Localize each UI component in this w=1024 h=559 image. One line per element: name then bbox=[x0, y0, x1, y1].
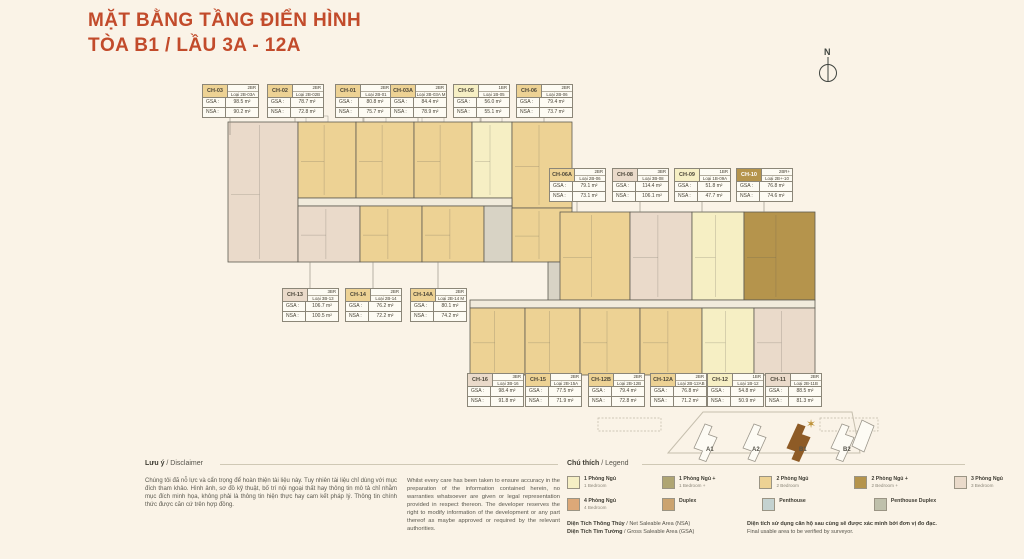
legend-label-vn: 1 Phòng Ngủ + bbox=[679, 476, 715, 483]
unit-bedroom-count: 2BR bbox=[791, 374, 821, 381]
nsa-label: NSA : bbox=[766, 397, 789, 406]
nsa-label: NSA : bbox=[737, 192, 760, 201]
unit-id: CH-03 bbox=[203, 85, 228, 97]
nsa-label: NSA : bbox=[550, 192, 573, 201]
nsa-value: 47.7 m² bbox=[698, 192, 730, 201]
unit-label: CH-06 2BR Loại 2B-06 GSA : 79.4 m² NSA :… bbox=[516, 84, 573, 118]
unit-type-code: Loại 2B-15A bbox=[551, 381, 581, 387]
nsa-value: 75.7 m² bbox=[359, 108, 391, 117]
unit-id: CH-10 bbox=[737, 169, 762, 181]
gsa-label: GSA : bbox=[203, 98, 226, 107]
legend-swatch bbox=[854, 476, 867, 489]
gsa-label: GSA : bbox=[766, 387, 789, 396]
unit-bedroom-count: 2BR bbox=[551, 374, 581, 381]
legend-label-vn: 2 Phòng Ngủ bbox=[776, 476, 808, 483]
gsa-label: GSA : bbox=[454, 98, 477, 107]
legend-label-en: 1 Bedroom + bbox=[679, 483, 715, 489]
unit-bedroom-count: 2BR bbox=[371, 289, 401, 296]
legend-swatch bbox=[567, 476, 580, 489]
gsa-value: 76.8 m² bbox=[674, 387, 706, 396]
unit-bedroom-count: 2BR bbox=[416, 85, 446, 92]
gsa-label: GSA : bbox=[468, 387, 491, 396]
unit-type-code: Loại 3B-13 bbox=[308, 296, 338, 302]
gsa-value: 56.0 m² bbox=[477, 98, 509, 107]
gsa-label: GSA : bbox=[526, 387, 549, 396]
unit-bedroom-count: 3BR bbox=[308, 289, 338, 296]
gsa-value: 77.5 m² bbox=[549, 387, 581, 396]
unit-label: CH-03A 2BR Loại 2B-03A M GSA : 84.4 m² N… bbox=[390, 84, 447, 118]
legend-swatch bbox=[762, 498, 775, 511]
unit-type-code: Loại 2B-14 M bbox=[436, 296, 466, 302]
unit-type-code: Loại 2B-03A bbox=[228, 92, 258, 98]
floor-plan-document: MẶT BẰNG TẦNG ĐIỂN HÌNH TÒA B1 / LẦU 3A … bbox=[0, 0, 1024, 559]
gsa-label: GSA : bbox=[589, 387, 612, 396]
nsa-value: 73.7 m² bbox=[540, 108, 572, 117]
legend-label-vn: 4 Phòng Ngủ bbox=[584, 498, 616, 505]
nsa-value: 71.9 m² bbox=[549, 397, 581, 406]
unit-type-code: Loại 2B+-10 bbox=[762, 176, 792, 182]
gsa-value: 84.4 m² bbox=[414, 98, 446, 107]
nsa-label: NSA : bbox=[708, 397, 731, 406]
unit-label: CH-05 1BR Loại 1B-05 GSA : 56.0 m² NSA :… bbox=[453, 84, 510, 118]
legend-swatch bbox=[874, 498, 887, 511]
gsa-value: 76.2 m² bbox=[369, 302, 401, 311]
gsa-label: GSA : bbox=[346, 302, 369, 311]
unit-id: CH-14A bbox=[411, 289, 436, 301]
gsa-value: 114.4 m² bbox=[636, 182, 668, 191]
nsa-value: 81.3 m² bbox=[789, 397, 821, 406]
legend-swatch bbox=[662, 498, 675, 511]
unit-type-code: Loại 2B-02B bbox=[293, 92, 323, 98]
legend-label-en: 4 Bedroom bbox=[584, 505, 616, 511]
legend-label-en: 2 Bedroom bbox=[776, 483, 808, 489]
gsa-label: GSA : bbox=[517, 98, 540, 107]
legend-label-vn: Penthouse Duplex bbox=[891, 498, 936, 505]
gsa-label: GSA : bbox=[613, 182, 636, 191]
unit-id: CH-06 bbox=[517, 85, 542, 97]
legend-item: 2 Phòng Ngủ 2 Bedroom bbox=[759, 476, 808, 489]
gsa-value: 88.5 m² bbox=[789, 387, 821, 396]
unit-bedroom-count: 1BR bbox=[700, 169, 730, 176]
nsa-label: NSA : bbox=[203, 108, 226, 117]
gsa-label: GSA : bbox=[550, 182, 573, 191]
legend-label-vn: Duplex bbox=[679, 498, 696, 505]
legend-title: Chú thích / Legend bbox=[567, 460, 628, 467]
disclaimer-rule bbox=[220, 464, 558, 465]
gsa-label: GSA : bbox=[268, 98, 291, 107]
unit-label: CH-15 2BR Loại 2B-15A GSA : 77.5 m² NSA … bbox=[525, 373, 582, 407]
area-note: Diện tích sử dụng căn hộ sau cùng sẽ đượ… bbox=[747, 520, 967, 528]
unit-label: CH-02 2BR Loại 2B-02B GSA : 78.7 m² NSA … bbox=[267, 84, 324, 118]
nsa-label: NSA : bbox=[346, 312, 369, 321]
unit-bedroom-count: 2BR bbox=[228, 85, 258, 92]
unit-id: CH-12A bbox=[651, 374, 676, 386]
nsa-value: 72.8 m² bbox=[291, 108, 323, 117]
unit-bedroom-count: 2BR bbox=[293, 85, 323, 92]
gsa-value: 78.7 m² bbox=[291, 98, 323, 107]
nsa-value: 100.5 m² bbox=[306, 312, 338, 321]
legend-item: 1 Phòng Ngủ 1 Bedroom bbox=[567, 476, 616, 489]
unit-label: CH-06A 2BR Loại 2B-06 GSA : 79.1 m² NSA … bbox=[549, 168, 606, 202]
unit-id: CH-12 bbox=[708, 374, 733, 386]
gsa-label: GSA : bbox=[708, 387, 731, 396]
unit-bedroom-count: 2BR bbox=[614, 374, 644, 381]
nsa-value: 71.2 m² bbox=[674, 397, 706, 406]
unit-type-code: Loại 1B-09A bbox=[700, 176, 730, 182]
unit-bedroom-count: 1BR bbox=[733, 374, 763, 381]
legend-swatch bbox=[567, 498, 580, 511]
unit-type-code: Loại 2B-01 bbox=[361, 92, 391, 98]
unit-label: CH-12B 2BR Loại 2B-12B GSA : 79.4 m² NSA… bbox=[588, 373, 645, 407]
unit-label: CH-01 2BR Loại 2B-01 GSA : 80.8 m² NSA :… bbox=[335, 84, 392, 118]
unit-label: CH-10 2BR+ Loại 2B+-10 GSA : 76.8 m² NSA… bbox=[736, 168, 793, 202]
nsa-label: NSA : bbox=[517, 108, 540, 117]
legend-label-vn: 2 Phòng Ngủ + bbox=[871, 476, 907, 483]
area-note: Diện Tích Thông Thủy / Net Saleable Area… bbox=[567, 520, 742, 528]
legend-item: 4 Phòng Ngủ 4 Bedroom bbox=[567, 498, 616, 511]
legend-label-vn: Penthouse bbox=[779, 498, 806, 505]
area-notes-left: Diện Tích Thông Thủy / Net Saleable Area… bbox=[567, 520, 742, 536]
unit-label: CH-12 1BR Loại 1B-12 GSA : 54.8 m² NSA :… bbox=[707, 373, 764, 407]
gsa-value: 51.8 m² bbox=[698, 182, 730, 191]
legend-row-1: 1 Phòng Ngủ 1 Bedroom 1 Phòng Ngủ + 1 Be… bbox=[567, 476, 1003, 489]
area-note: Diện Tích Tim Tường / Gross Saleable Are… bbox=[567, 528, 742, 536]
nsa-value: 73.1 m² bbox=[573, 192, 605, 201]
nsa-value: 91.8 m² bbox=[491, 397, 523, 406]
legend-item: Duplex bbox=[662, 498, 696, 511]
unit-bedroom-count: 2BR bbox=[542, 85, 572, 92]
legend-swatch bbox=[759, 476, 772, 489]
legend-item: 1 Phòng Ngủ + 1 Bedroom + bbox=[662, 476, 715, 489]
gsa-value: 79.4 m² bbox=[540, 98, 572, 107]
gsa-value: 106.7 m² bbox=[306, 302, 338, 311]
legend-row-2: 4 Phòng Ngủ 4 Bedroom Duplex Penthouse P… bbox=[567, 498, 936, 511]
nsa-value: 50.9 m² bbox=[731, 397, 763, 406]
unit-id: CH-12B bbox=[589, 374, 614, 386]
gsa-label: GSA : bbox=[651, 387, 674, 396]
unit-id: CH-14 bbox=[346, 289, 371, 301]
gsa-value: 98.5 m² bbox=[226, 98, 258, 107]
area-note: Final usable area to be verified by surv… bbox=[747, 528, 967, 536]
gsa-value: 76.8 m² bbox=[760, 182, 792, 191]
unit-type-code: Loại 2B-11B bbox=[791, 381, 821, 387]
gsa-value: 79.4 m² bbox=[612, 387, 644, 396]
nsa-value: 78.9 m² bbox=[414, 108, 446, 117]
legend-label-vn: 3 Phòng Ngủ bbox=[971, 476, 1003, 483]
unit-type-code: Loại 2B-14 bbox=[371, 296, 401, 302]
unit-type-code: Loại 2B-06 bbox=[542, 92, 572, 98]
nsa-label: NSA : bbox=[268, 108, 291, 117]
gsa-label: GSA : bbox=[737, 182, 760, 191]
legend-item: 2 Phòng Ngủ + 2 Bedroom + bbox=[854, 476, 907, 489]
disclaimer-title: Lưu ý / Disclaimer bbox=[145, 460, 203, 467]
nsa-label: NSA : bbox=[336, 108, 359, 117]
unit-bedroom-count: 3BR bbox=[493, 374, 523, 381]
unit-id: CH-16 bbox=[468, 374, 493, 386]
disclaimer-text-en: Whilst every care has been taken to ensu… bbox=[407, 477, 560, 533]
nsa-label: NSA : bbox=[283, 312, 306, 321]
legend-label-en: 3 Bedroom bbox=[971, 483, 1003, 489]
nsa-value: 72.2 m² bbox=[369, 312, 401, 321]
gsa-value: 54.8 m² bbox=[731, 387, 763, 396]
legend-label-vn: 1 Phòng Ngủ bbox=[584, 476, 616, 483]
unit-type-code: Loại 2B-06 bbox=[575, 176, 605, 182]
unit-id: CH-13 bbox=[283, 289, 308, 301]
nsa-label: NSA : bbox=[589, 397, 612, 406]
gsa-value: 80.8 m² bbox=[359, 98, 391, 107]
unit-type-code: Loại 1B-12 bbox=[733, 381, 763, 387]
legend-item: Penthouse bbox=[762, 498, 806, 511]
unit-id: CH-02 bbox=[268, 85, 293, 97]
unit-id: CH-15 bbox=[526, 374, 551, 386]
unit-bedroom-count: 2BR+ bbox=[762, 169, 792, 176]
unit-label: CH-14 2BR Loại 2B-14 GSA : 76.2 m² NSA :… bbox=[345, 288, 402, 322]
unit-type-code: Loại 3B-16 bbox=[493, 381, 523, 387]
gsa-label: GSA : bbox=[283, 302, 306, 311]
unit-bedroom-count: 3BR bbox=[638, 169, 668, 176]
unit-label: CH-13 3BR Loại 3B-13 GSA : 106.7 m² NSA … bbox=[282, 288, 339, 322]
unit-label: CH-08 3BR Loại 3B-08 GSA : 114.4 m² NSA … bbox=[612, 168, 669, 202]
unit-bedroom-count: 2BR bbox=[361, 85, 391, 92]
unit-type-code: Loại 2B-12B bbox=[614, 381, 644, 387]
unit-label: CH-16 3BR Loại 3B-16 GSA : 98.4 m² NSA :… bbox=[467, 373, 524, 407]
legend-swatch bbox=[954, 476, 967, 489]
nsa-label: NSA : bbox=[391, 108, 414, 117]
nsa-label: NSA : bbox=[651, 397, 674, 406]
nsa-label: NSA : bbox=[613, 192, 636, 201]
unit-label: CH-09 1BR Loại 1B-09A GSA : 51.8 m² NSA … bbox=[674, 168, 731, 202]
nsa-value: 55.1 m² bbox=[477, 108, 509, 117]
legend-label-en: 1 Bedroom bbox=[584, 483, 616, 489]
unit-label: CH-14A 2BR Loại 2B-14 M GSA : 80.1 m² NS… bbox=[410, 288, 467, 322]
gsa-value: 98.4 m² bbox=[491, 387, 523, 396]
nsa-value: 74.2 m² bbox=[434, 312, 466, 321]
unit-label: CH-12A 2BR Loại 2B-12AB GSA : 76.8 m² NS… bbox=[650, 373, 707, 407]
gsa-value: 79.1 m² bbox=[573, 182, 605, 191]
nsa-label: NSA : bbox=[468, 397, 491, 406]
nsa-value: 72.8 m² bbox=[612, 397, 644, 406]
nsa-value: 74.6 m² bbox=[760, 192, 792, 201]
nsa-label: NSA : bbox=[526, 397, 549, 406]
nsa-label: NSA : bbox=[454, 108, 477, 117]
unit-id: CH-03A bbox=[391, 85, 416, 97]
gsa-value: 80.1 m² bbox=[434, 302, 466, 311]
legend-swatch bbox=[662, 476, 675, 489]
area-notes-right: Diện tích sử dụng căn hộ sau cùng sẽ đượ… bbox=[747, 520, 967, 536]
legend-item: Penthouse Duplex bbox=[874, 498, 936, 511]
nsa-value: 90.2 m² bbox=[226, 108, 258, 117]
legend-item: 3 Phòng Ngủ 3 Bedroom bbox=[954, 476, 1003, 489]
gsa-label: GSA : bbox=[675, 182, 698, 191]
unit-bedroom-count: 2BR bbox=[676, 374, 706, 381]
unit-type-code: Loại 1B-05 bbox=[479, 92, 509, 98]
nsa-label: NSA : bbox=[675, 192, 698, 201]
unit-id: CH-06A bbox=[550, 169, 575, 181]
unit-id: CH-01 bbox=[336, 85, 361, 97]
legend-rule bbox=[642, 464, 965, 465]
unit-type-code: Loại 2B-03A M bbox=[416, 92, 446, 98]
unit-id: CH-05 bbox=[454, 85, 479, 97]
unit-label: CH-11 2BR Loại 2B-11B GSA : 88.5 m² NSA … bbox=[765, 373, 822, 407]
gsa-label: GSA : bbox=[391, 98, 414, 107]
nsa-label: NSA : bbox=[411, 312, 434, 321]
unit-type-code: Loại 2B-12AB bbox=[676, 381, 706, 387]
unit-type-code: Loại 3B-08 bbox=[638, 176, 668, 182]
unit-bedroom-count: 2BR bbox=[436, 289, 466, 296]
unit-bedroom-count: 2BR bbox=[575, 169, 605, 176]
gsa-label: GSA : bbox=[336, 98, 359, 107]
gsa-label: GSA : bbox=[411, 302, 434, 311]
unit-label: CH-03 2BR Loại 2B-03A GSA : 98.5 m² NSA … bbox=[202, 84, 259, 118]
legend-label-en: 2 Bedroom + bbox=[871, 483, 907, 489]
nsa-value: 106.1 m² bbox=[636, 192, 668, 201]
unit-bedroom-count: 1BR bbox=[479, 85, 509, 92]
unit-id: CH-08 bbox=[613, 169, 638, 181]
disclaimer-text-vi: Chúng tôi đã nỗ lực và cẩn trọng để hoàn… bbox=[145, 477, 397, 509]
unit-id: CH-09 bbox=[675, 169, 700, 181]
unit-id: CH-11 bbox=[766, 374, 791, 386]
